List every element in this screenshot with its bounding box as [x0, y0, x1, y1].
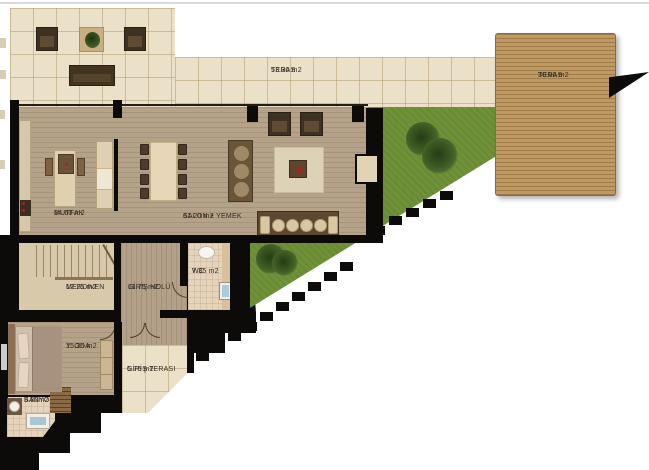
- boundary-step: [212, 342, 225, 351]
- wall: [180, 235, 372, 243]
- dining-chair-icon: [140, 144, 149, 155]
- bush-icon: [272, 250, 298, 276]
- bath-sink-icon: [9, 401, 20, 412]
- table-decor: [295, 166, 303, 174]
- column: [247, 106, 258, 122]
- entrance-terrace-floor: [122, 345, 187, 413]
- living-armchair-icon: [300, 112, 323, 136]
- room-area: 7.35 m2: [192, 267, 219, 276]
- sofa-armrest: [260, 216, 270, 234]
- sofa-cushion: [300, 219, 313, 232]
- sofa-cushion: [234, 164, 249, 179]
- stool-icon: [45, 158, 53, 176]
- boundary-step: [423, 199, 436, 208]
- room-area: 12.25 m2: [66, 283, 97, 292]
- boundary-step: [340, 262, 353, 271]
- terrace-armchair-icon: [124, 27, 146, 51]
- dining-table-icon: [150, 142, 177, 201]
- wall: [160, 310, 243, 318]
- coffee-table-icon: [289, 160, 307, 178]
- margin-mark: [0, 110, 5, 119]
- bed-icon: [15, 326, 62, 392]
- tub-basin: [30, 417, 46, 425]
- boundary-step: [440, 191, 453, 200]
- room-area: 5.76 m2: [127, 365, 154, 374]
- wall: [230, 238, 243, 314]
- dining-chair-icon: [140, 159, 149, 170]
- terrace-sofa-icon: [69, 65, 115, 86]
- pillow-icon: [17, 362, 29, 389]
- living-armchair-icon: [268, 112, 291, 136]
- armchair-seat: [304, 121, 319, 132]
- boundary-step: [292, 292, 305, 301]
- planter-box-icon: [79, 27, 104, 52]
- wall: [180, 238, 188, 286]
- boundary-step: [276, 302, 289, 311]
- wardrobe-divider: [101, 357, 112, 358]
- upper-terrace-floor-strip: [175, 57, 497, 107]
- kitchen-island-icon: [54, 150, 76, 207]
- room-area: 24.60 m2: [54, 209, 85, 218]
- kitchen-tall-cabinet: [96, 141, 113, 209]
- plant-icon: [85, 32, 100, 48]
- wall: [114, 238, 121, 312]
- column: [113, 100, 122, 118]
- stair-treads: [36, 245, 113, 277]
- boundary-step: [372, 226, 385, 235]
- boundary-step: [260, 312, 273, 321]
- stove-knob: [22, 202, 25, 205]
- sofa-cushion: [314, 219, 327, 232]
- floor-plan: TERAS 53.30 m2 TERAS 30.00 m2 MUTFAK 24.…: [0, 0, 649, 470]
- glass-facade-line: [10, 104, 368, 106]
- deck-terrace-floor: [495, 33, 616, 196]
- dining-chair-icon: [140, 174, 149, 185]
- bathtub-icon: [26, 413, 50, 429]
- boundary-step: [196, 352, 209, 361]
- room-area: 15.35 m2: [66, 342, 97, 351]
- dining-chair-icon: [178, 174, 187, 185]
- boundary-step: [324, 272, 337, 281]
- dining-chair-icon: [178, 188, 187, 199]
- armchair-seat: [272, 121, 287, 132]
- sofa-cushion: [286, 219, 299, 232]
- wall: [10, 243, 19, 318]
- sofa-cushion: [234, 146, 249, 161]
- main-sofa-icon: [257, 211, 339, 237]
- cabinet-mid-section: [97, 168, 112, 190]
- bed-blanket: [32, 327, 61, 391]
- toilet-icon: [198, 246, 215, 259]
- bath-vanity: [7, 398, 22, 415]
- sofa-cushion: [272, 219, 285, 232]
- room-area: 5.80m2: [24, 396, 49, 405]
- sofa-cushion: [234, 182, 249, 197]
- boundary-step: [406, 208, 419, 217]
- room-area: 53.30 m2: [271, 66, 302, 75]
- wall: [114, 322, 122, 400]
- bed-headboard: [8, 324, 15, 394]
- island-cooktop: [58, 154, 74, 174]
- wall: [10, 100, 19, 243]
- boundary-step: [244, 322, 257, 331]
- wc-mosaic-strip: [222, 243, 230, 310]
- boundary-step: [389, 216, 402, 225]
- column: [352, 106, 364, 122]
- dining-chair-icon: [140, 188, 149, 199]
- bedroom-window: [1, 344, 7, 370]
- stove-icon: [20, 200, 31, 216]
- wall: [10, 235, 122, 243]
- wardrobe-icon: [100, 340, 113, 390]
- side-sofa-icon: [228, 140, 253, 202]
- armchair-seat: [40, 36, 54, 47]
- terrace-armchair-icon: [36, 27, 58, 51]
- pillow-icon: [17, 333, 30, 360]
- boundary-step: [228, 332, 241, 341]
- stair-landing-line: [55, 277, 113, 280]
- armchair-seat: [128, 36, 142, 47]
- margin-mark: [0, 38, 6, 48]
- margin-mark: [0, 70, 6, 79]
- bush-icon: [422, 138, 458, 174]
- stool-icon: [77, 158, 85, 176]
- cooktop-dot: [65, 163, 68, 166]
- wall: [8, 310, 120, 322]
- wardrobe-divider: [101, 374, 112, 375]
- stove-knob: [22, 209, 25, 212]
- side-entry-step: [355, 154, 379, 184]
- wall: [114, 139, 118, 211]
- top-border-line: [0, 2, 649, 4]
- sofa-seat: [73, 74, 111, 82]
- room-area: 11.75 m2: [128, 283, 158, 292]
- dining-chair-icon: [178, 144, 187, 155]
- sofa-armrest: [328, 216, 338, 234]
- margin-mark: [0, 160, 5, 169]
- dining-chair-icon: [178, 159, 187, 170]
- boundary-step: [308, 282, 321, 291]
- room-area: 30.00 m2: [538, 71, 569, 80]
- room-area: 61.20 m2: [183, 212, 214, 221]
- upper-terrace-floor: [10, 8, 175, 107]
